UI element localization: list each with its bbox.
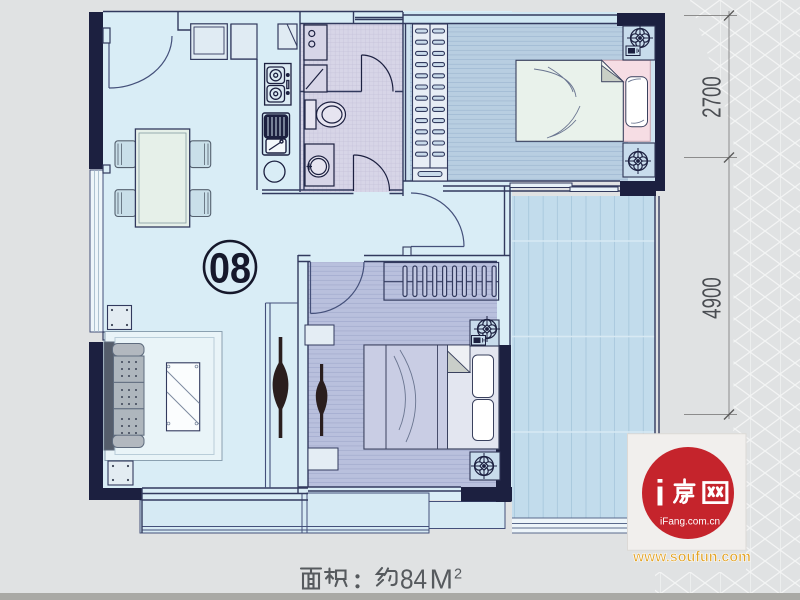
svg-text:4900: 4900 xyxy=(696,277,726,319)
svg-text:i: i xyxy=(655,473,665,514)
svg-text:iFang.com.cn: iFang.com.cn xyxy=(660,517,720,528)
svg-text:www.soufun.com: www.soufun.com xyxy=(632,550,751,566)
svg-text:2700: 2700 xyxy=(696,76,726,118)
svg-text:M: M xyxy=(430,564,453,595)
svg-text:2: 2 xyxy=(454,567,462,583)
svg-text:84: 84 xyxy=(400,563,427,595)
svg-text:08: 08 xyxy=(209,245,251,293)
